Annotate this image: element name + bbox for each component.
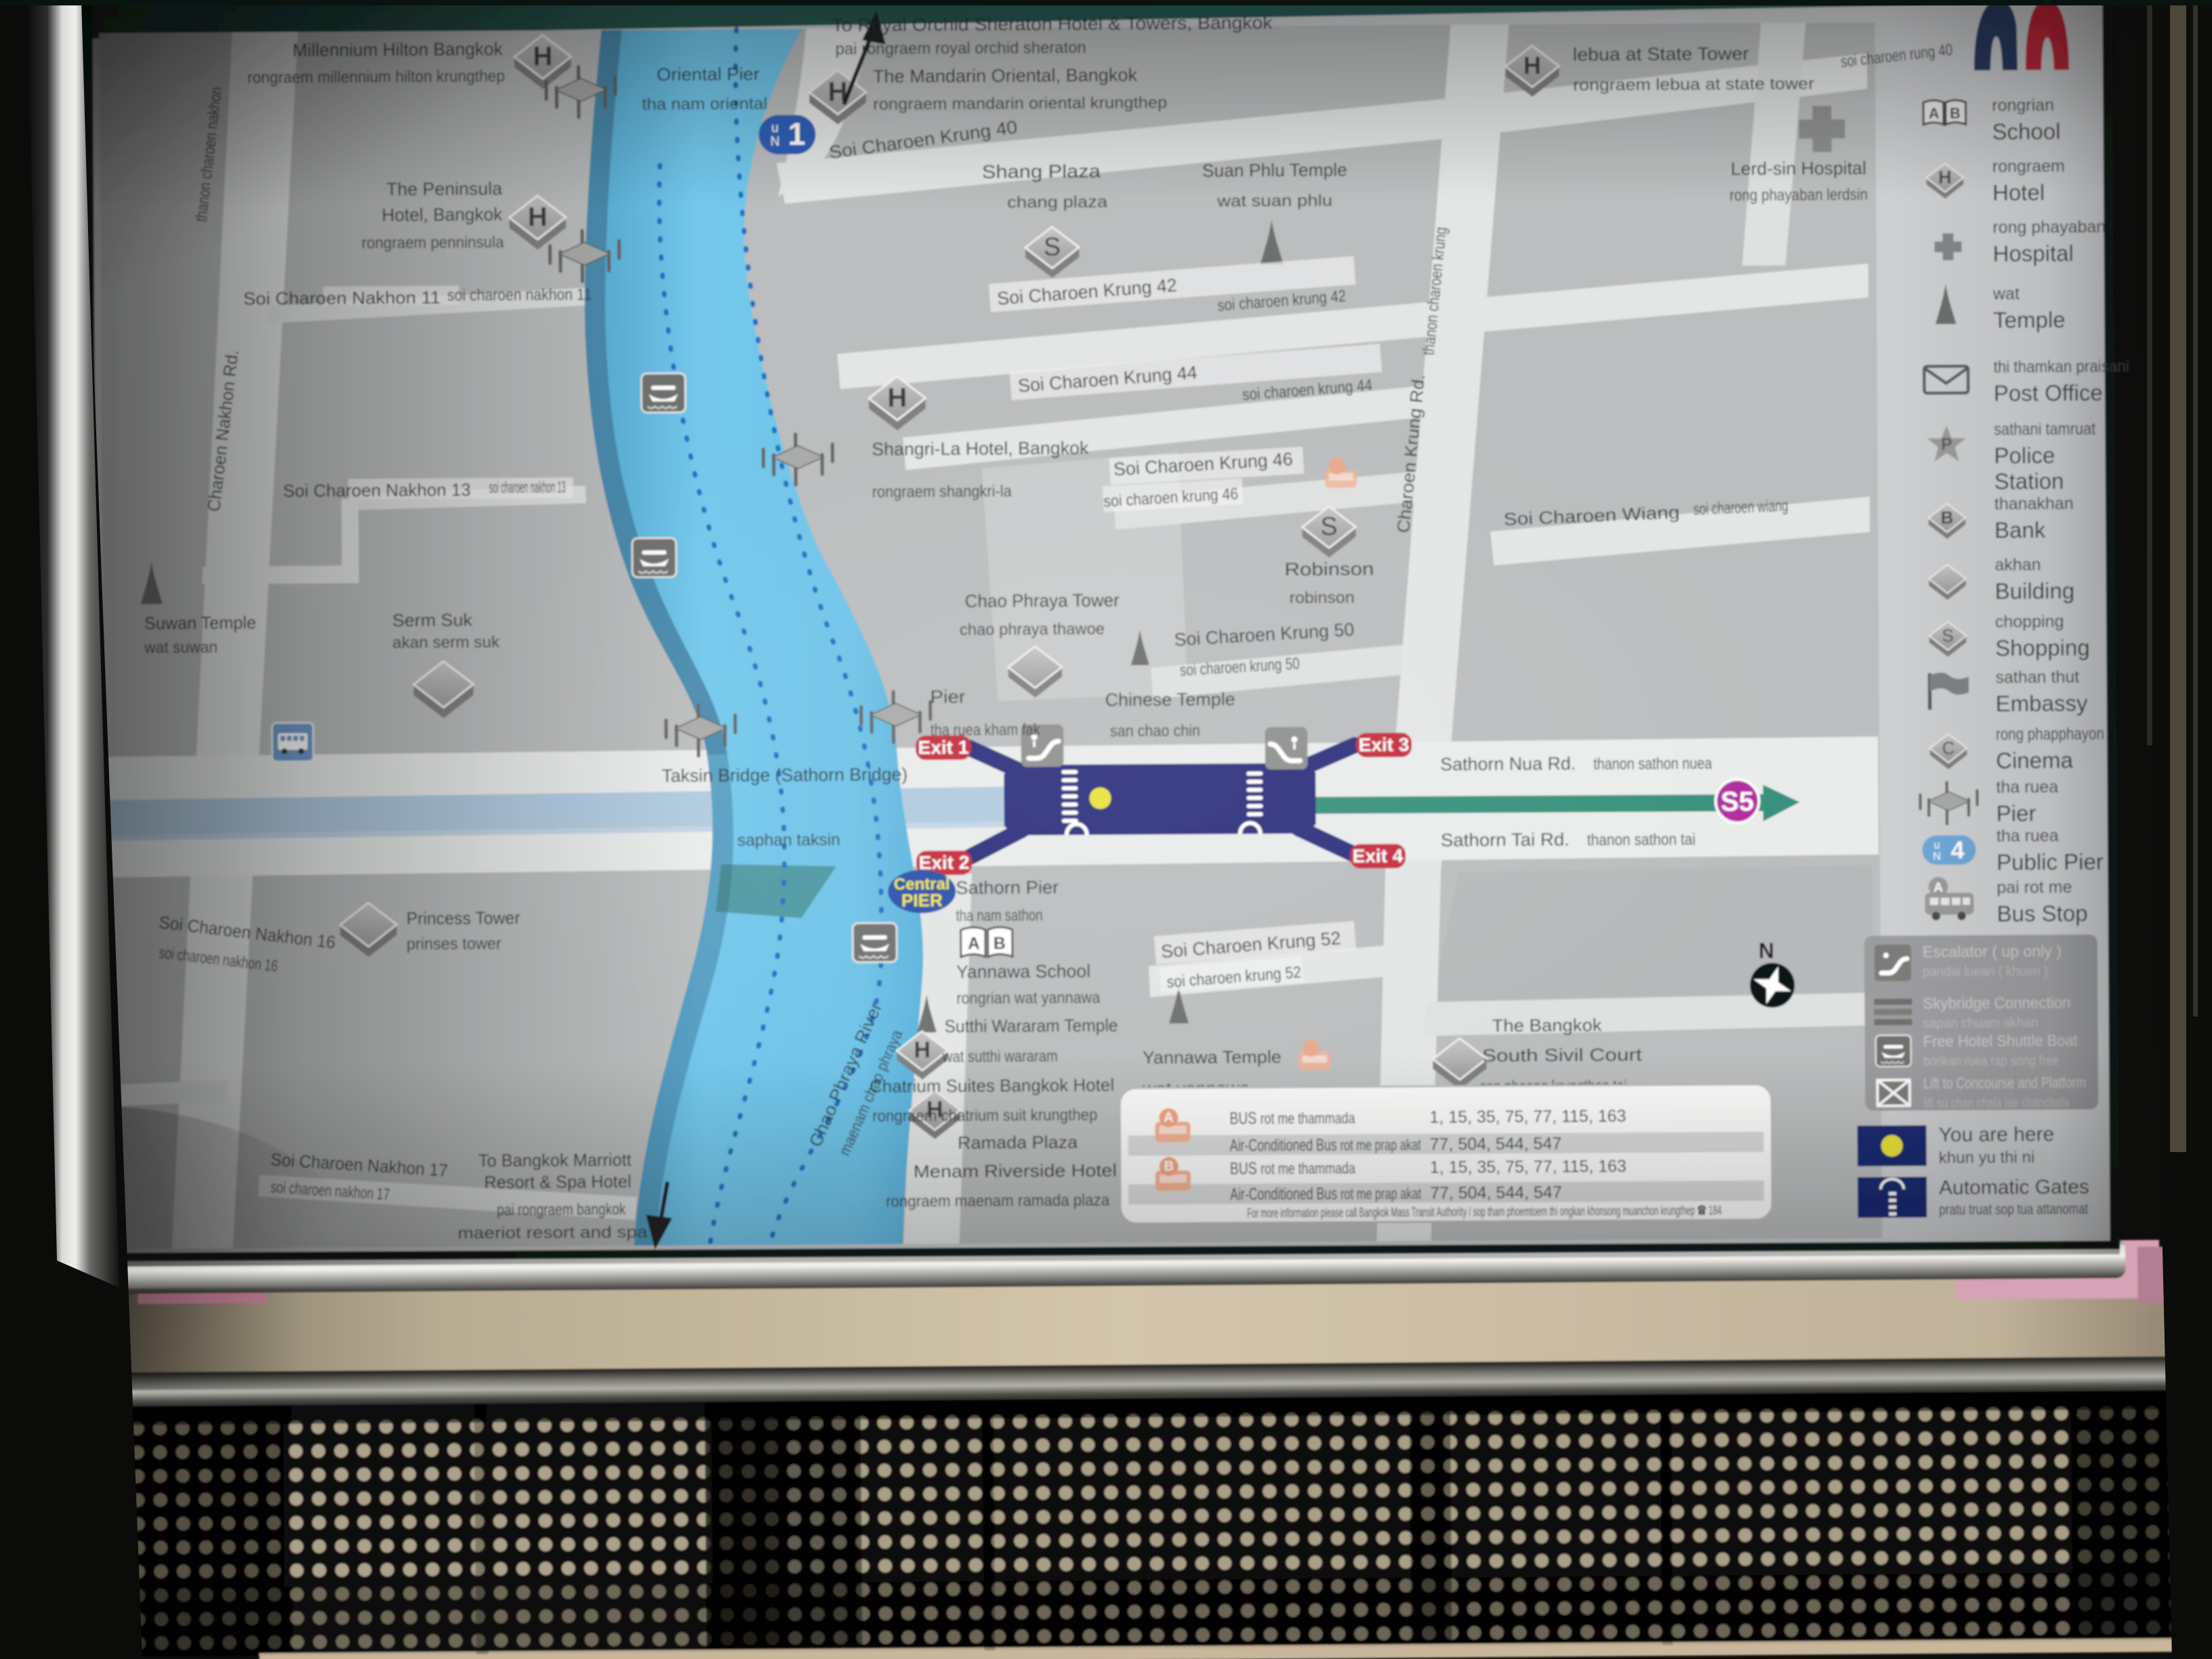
svg-text:soi charoen wiang: soi charoen wiang	[1693, 497, 1788, 519]
svg-text:S: S	[1044, 233, 1061, 262]
svg-text:N: N	[1759, 939, 1774, 963]
